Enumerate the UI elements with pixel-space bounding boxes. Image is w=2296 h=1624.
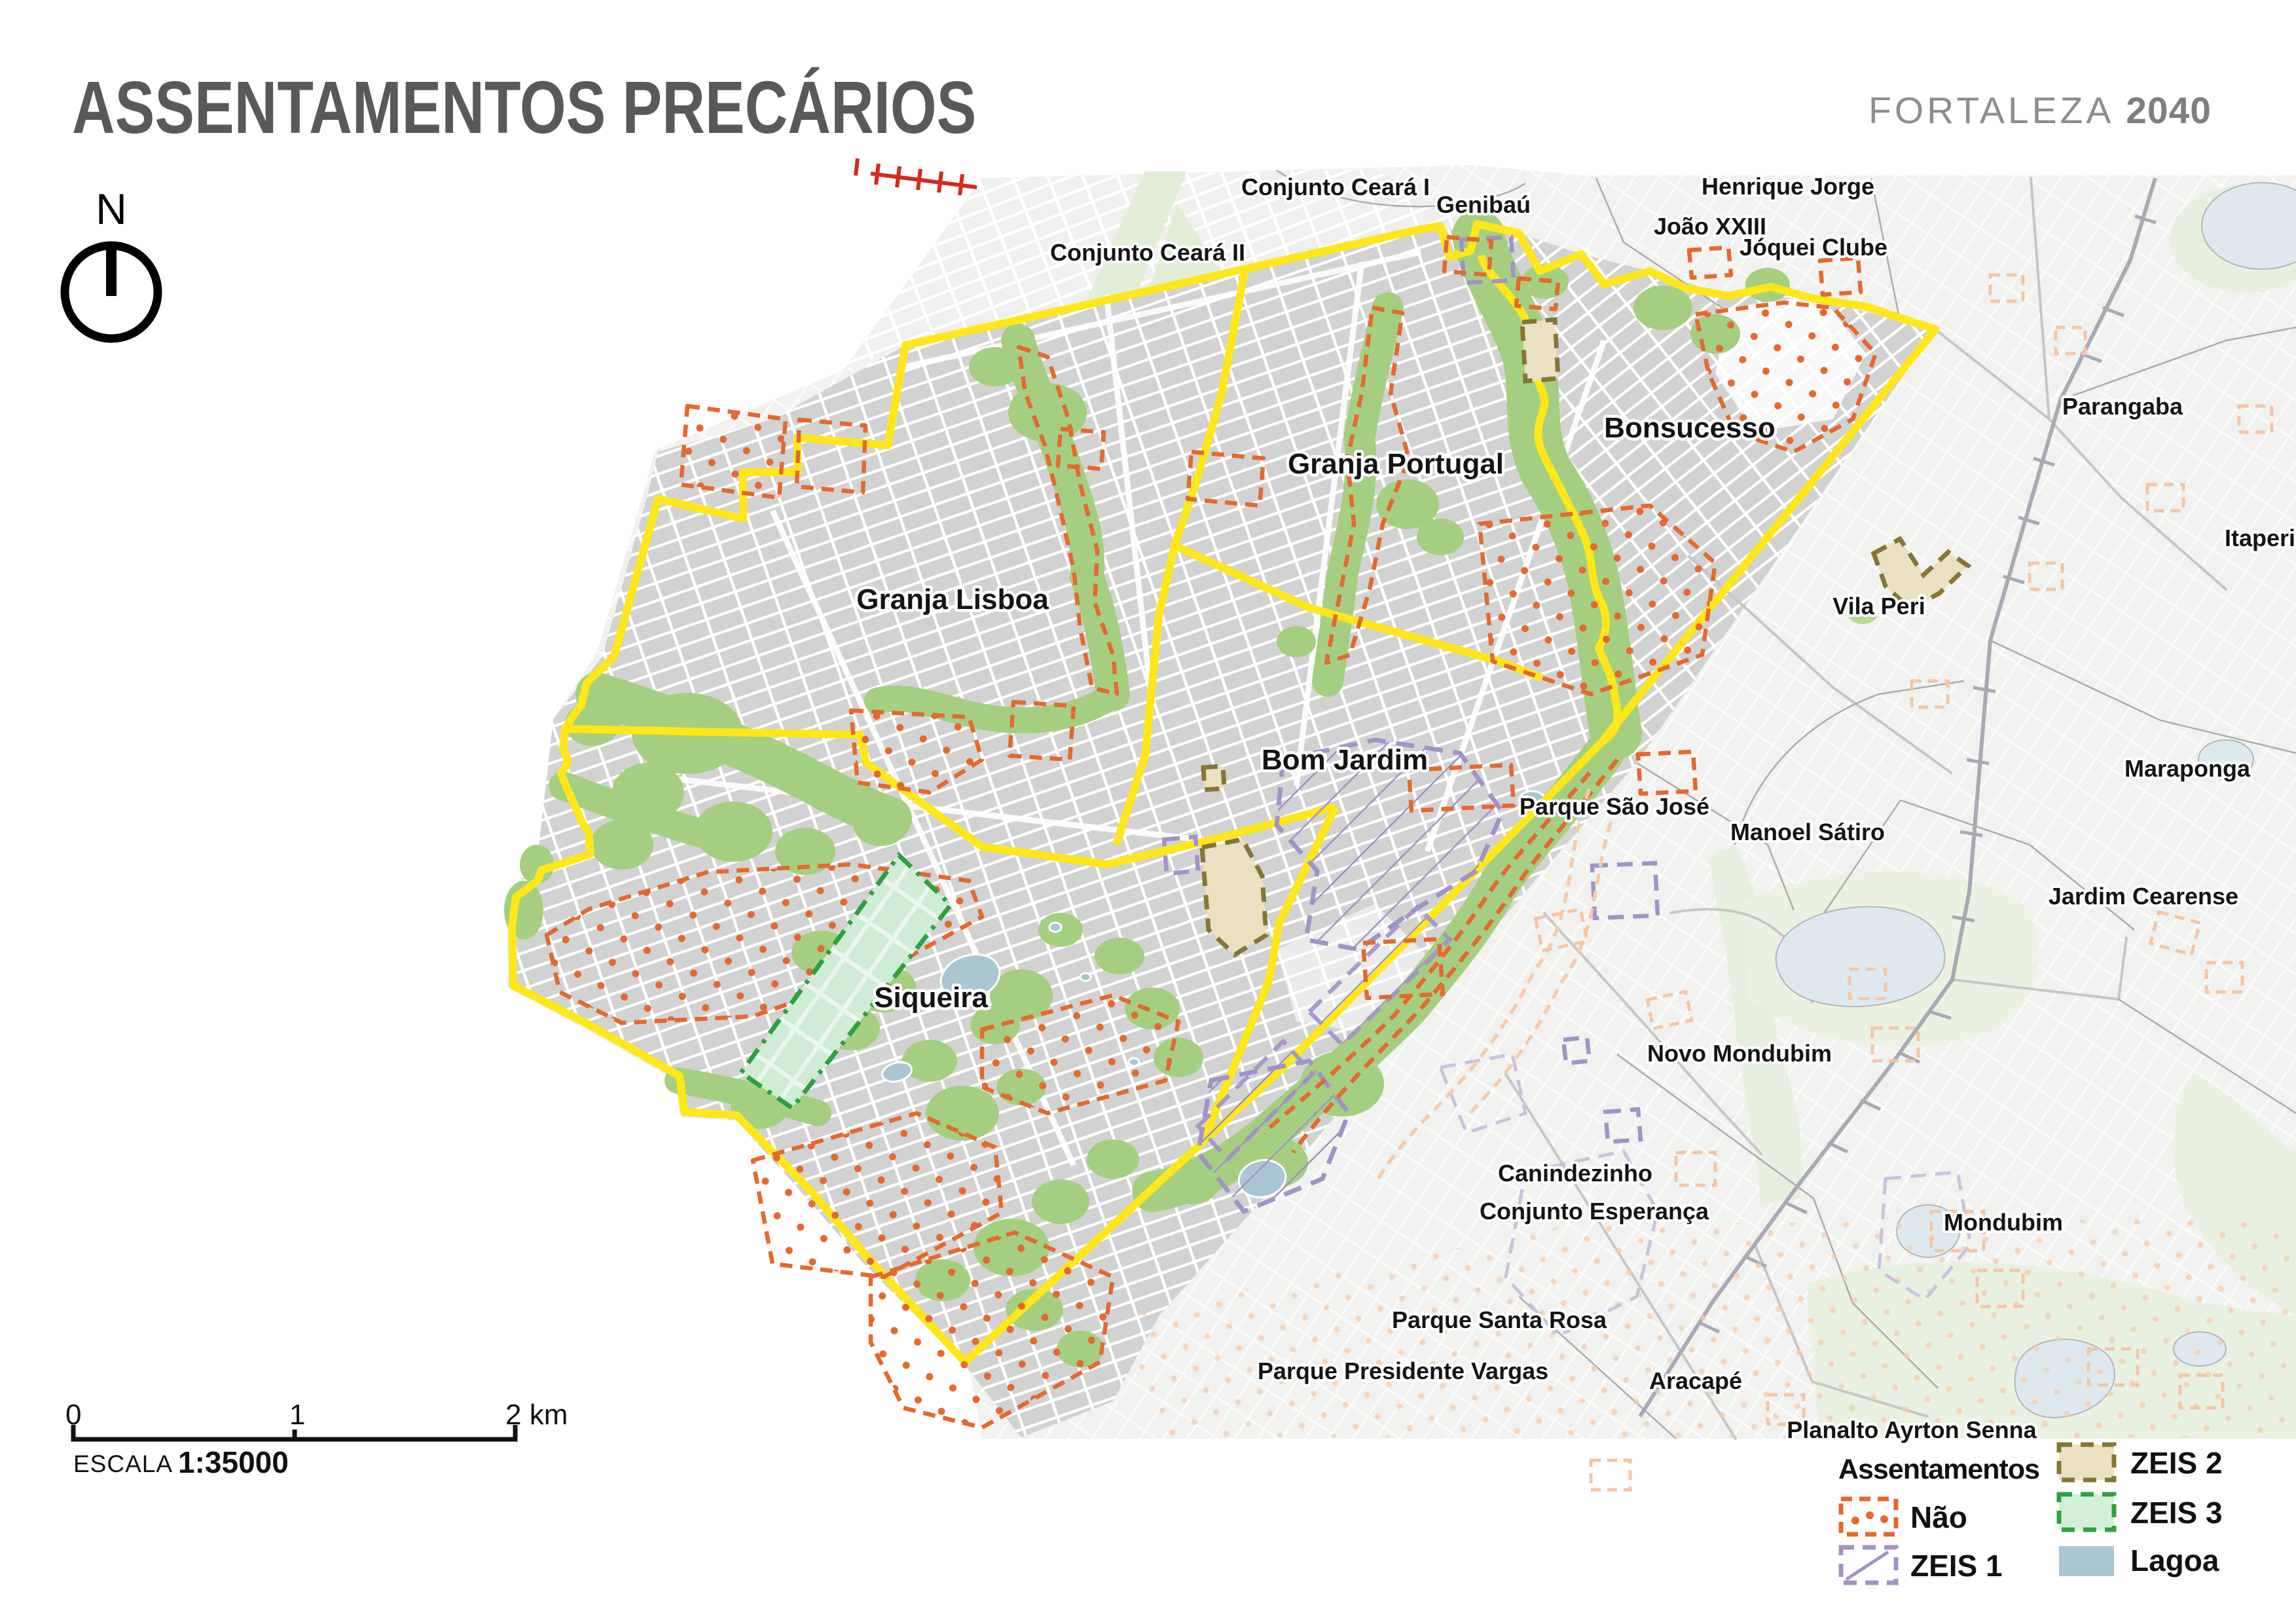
svg-text:ESCALA: ESCALA [73,1450,173,1477]
svg-text:Planalto Ayrton Senna: Planalto Ayrton Senna [1787,1416,2037,1443]
svg-text:Conjunto Ceará I: Conjunto Ceará I [1241,174,1430,200]
svg-text:ZEIS 1: ZEIS 1 [1910,1549,2003,1583]
svg-text:ZEIS 2: ZEIS 2 [2130,1446,2223,1480]
svg-text:ASSENTAMENTOS PRECÁRIOS: ASSENTAMENTOS PRECÁRIOS [72,66,976,149]
svg-text:Lagoa: Lagoa [2130,1543,2219,1578]
svg-text:Assentamentos: Assentamentos [1838,1454,2040,1485]
svg-text:Parque Santa Rosa: Parque Santa Rosa [1392,1306,1607,1333]
svg-text:Siqueira: Siqueira [874,982,988,1014]
svg-text:Bonsucesso: Bonsucesso [1604,412,1776,444]
svg-text:N: N [96,185,127,233]
svg-text:Granja Portugal: Granja Portugal [1288,448,1504,480]
svg-text:Conjunto Esperança: Conjunto Esperança [1480,1198,1709,1225]
svg-text:Novo Mondubim: Novo Mondubim [1647,1040,1832,1067]
svg-text:1:35000: 1:35000 [178,1445,289,1479]
svg-text:1: 1 [289,1399,305,1431]
svg-text:Jóquei Clube: Jóquei Clube [1740,234,1887,261]
svg-text:Não: Não [1910,1500,1967,1534]
svg-text:Henrique Jorge: Henrique Jorge [1702,173,1874,200]
svg-text:Parque Presidente Vargas: Parque Presidente Vargas [1258,1357,1548,1384]
svg-text:FORTALEZA 2040: FORTALEZA 2040 [1868,90,2212,132]
svg-text:Itaperi: Itaperi [2225,525,2295,551]
svg-text:Parangaba: Parangaba [2062,393,2183,420]
svg-text:Canindezinho: Canindezinho [1498,1160,1652,1187]
svg-text:Manoel Sátiro: Manoel Sátiro [1730,819,1885,845]
svg-text:Maraponga: Maraponga [2124,755,2251,782]
svg-text:Conjunto Ceará II: Conjunto Ceará II [1050,239,1245,266]
svg-text:Vila Peri: Vila Peri [1832,593,1925,619]
svg-text:Genibaú: Genibaú [1436,191,1531,218]
svg-text:Jardim Cearense: Jardim Cearense [2049,883,2238,910]
svg-text:Mondubim: Mondubim [1944,1209,2063,1236]
svg-text:Bom Jardim: Bom Jardim [1262,744,1428,776]
svg-text:ZEIS 3: ZEIS 3 [2130,1496,2223,1530]
svg-text:Aracapé: Aracapé [1649,1367,1742,1394]
svg-text:Granja Lisboa: Granja Lisboa [856,583,1049,616]
svg-text:Parque São José: Parque São José [1520,793,1709,820]
